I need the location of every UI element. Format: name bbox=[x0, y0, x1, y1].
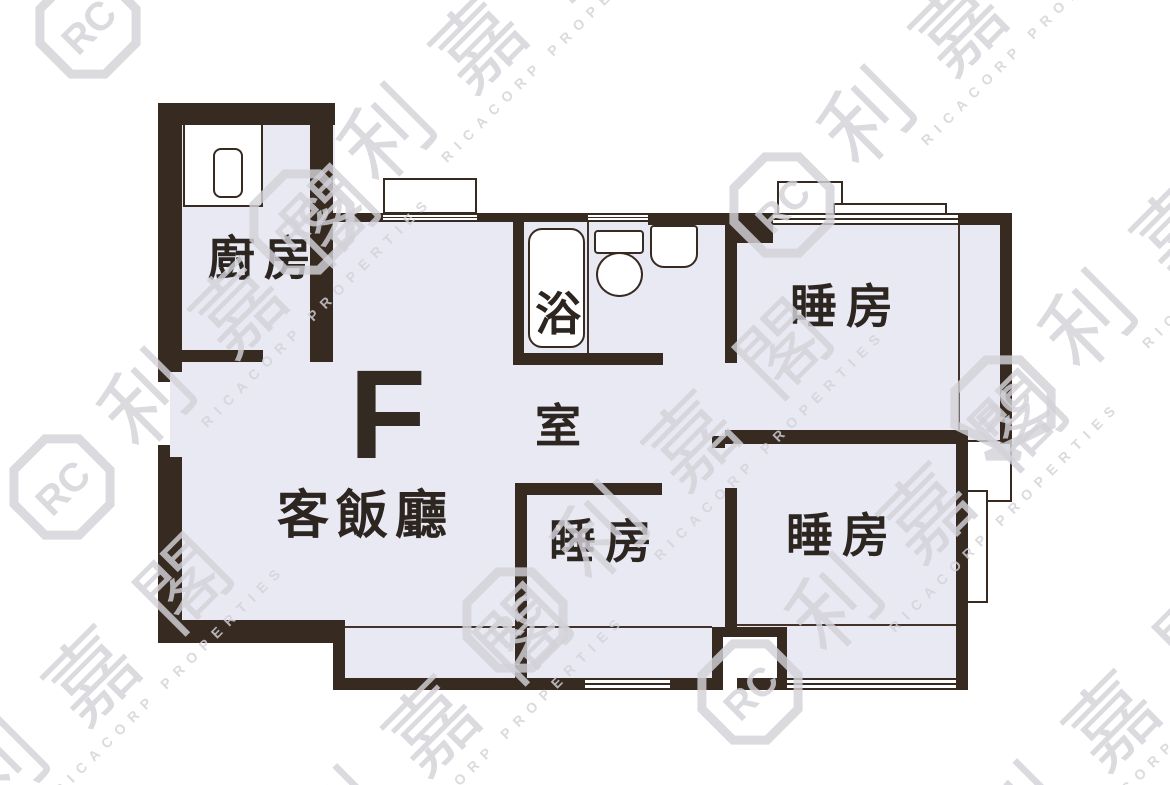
wall-notch bbox=[170, 445, 182, 457]
wall bbox=[725, 488, 737, 637]
window-bedroom-bottom-center bbox=[585, 678, 670, 690]
wall bbox=[515, 483, 527, 690]
ricacorp-logo-icon: RC bbox=[14, 0, 161, 100]
wall bbox=[158, 125, 182, 382]
toilet-tank bbox=[594, 230, 644, 254]
window-bathroom bbox=[588, 213, 648, 222]
bathroom-label: 浴 室 bbox=[533, 230, 583, 454]
wall bbox=[725, 222, 737, 363]
svg-text:RC: RC bbox=[53, 0, 125, 63]
bay-sill-line bbox=[737, 624, 958, 626]
wall bbox=[515, 483, 662, 495]
ac-platform-lower bbox=[966, 490, 988, 603]
wall bbox=[670, 678, 712, 690]
wall bbox=[182, 350, 263, 362]
wall bbox=[648, 213, 725, 225]
bay-sill-line bbox=[345, 626, 712, 628]
wall bbox=[1000, 213, 1012, 444]
wall bbox=[158, 620, 337, 643]
watermark-brand-cn: 利嘉閣 bbox=[959, 538, 1170, 785]
watermark-brand-cn: 利嘉閣 bbox=[326, 0, 664, 198]
wall bbox=[333, 620, 345, 690]
watermark-brand-en: RICACORP PROPERTIES bbox=[1071, 605, 1170, 785]
living-dining-label: 客飯廳 bbox=[277, 490, 454, 542]
ricacorp-logo-icon: RC bbox=[0, 413, 136, 560]
watermark-brand-en: RICACORP PROPERTIES bbox=[438, 0, 676, 165]
wall bbox=[345, 678, 517, 690]
watermark-brand-cn: 利嘉閣 bbox=[112, 0, 450, 2]
wash-basin bbox=[650, 225, 698, 268]
bedroom-top-right-label: 睡房 bbox=[790, 283, 902, 330]
wall bbox=[477, 213, 588, 222]
window-bedroom-bottom-right bbox=[787, 678, 956, 690]
wall-notch bbox=[170, 372, 182, 382]
wall bbox=[158, 445, 182, 643]
floorplan-canvas: 廚房 F 客飯廳 浴 室 睡房 睡房 睡房 RC 利嘉閣 RICACORP PR… bbox=[0, 0, 1170, 785]
window-bedroom-top-right bbox=[773, 213, 958, 225]
watermark-brand-en: RICACORP PROPERTIES bbox=[1139, 113, 1170, 351]
kitchen-label: 廚房 bbox=[208, 235, 320, 282]
watermark-brand-en: RICACORP PROPERTIES bbox=[918, 0, 1156, 148]
wall bbox=[527, 678, 585, 690]
bedroom-bottom-center-label: 睡房 bbox=[549, 518, 661, 565]
unit-label: F bbox=[349, 352, 426, 478]
wall bbox=[712, 436, 725, 448]
watermark-brand-cn: 利嘉閣 bbox=[1027, 46, 1170, 384]
toilet-bowl bbox=[596, 252, 643, 297]
wall bbox=[333, 213, 383, 222]
bedroom-strip-line bbox=[958, 225, 960, 430]
wall bbox=[712, 627, 787, 637]
wall bbox=[737, 678, 787, 690]
wall bbox=[956, 430, 968, 690]
bathroom-divider-line bbox=[587, 222, 589, 353]
bathroom-label-char: 室 bbox=[535, 400, 581, 452]
wall bbox=[513, 222, 524, 365]
window-box-living bbox=[383, 178, 477, 214]
wall bbox=[158, 103, 335, 125]
window-living-top bbox=[383, 213, 477, 222]
svg-text:RC: RC bbox=[27, 452, 99, 524]
kitchen-sink bbox=[213, 148, 243, 198]
watermark: RC 利嘉閣 RICACORP PROPERTIES bbox=[14, 0, 526, 100]
bathroom-label-char: 浴 bbox=[535, 288, 581, 340]
watermark-brand-cn: 利嘉閣 bbox=[806, 0, 1144, 181]
bedroom-bottom-right-label: 睡房 bbox=[786, 512, 898, 559]
wall bbox=[725, 430, 956, 444]
